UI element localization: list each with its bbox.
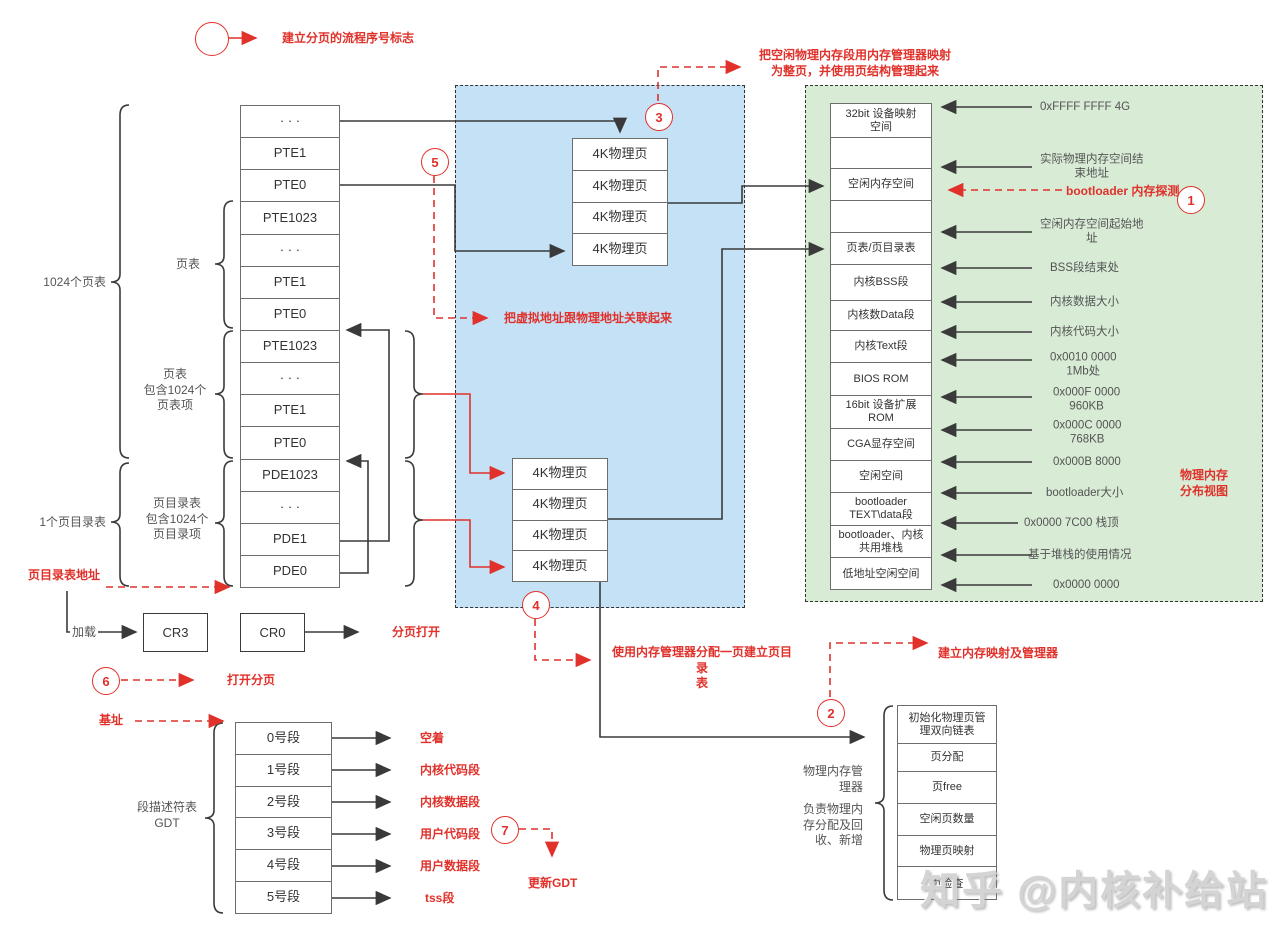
address-marker: 内核数据大小 xyxy=(1050,295,1119,309)
memory-row: 低地址空闲空间 xyxy=(831,558,931,590)
memory-row: 16bit 设备扩展 ROM xyxy=(831,396,931,429)
address-marker: 空闲内存空间起始地 址 xyxy=(1040,218,1144,247)
memory-row: 内核数Data段 xyxy=(831,301,931,331)
gdt-table: 0号段 1号段 2号段 3号段 4号段 5号段 xyxy=(235,722,332,914)
memory-row: 内核Text段 xyxy=(831,331,931,363)
address-marker: 实际物理内存空间结 束地址 xyxy=(1040,153,1144,182)
note-pgdir-address: 页目录表地址 xyxy=(28,568,100,584)
label-pagetable: 页表 xyxy=(150,257,200,273)
address-marker: BSS段结束处 xyxy=(1050,261,1119,275)
table-row: PDE1 xyxy=(241,524,339,556)
physical-page-cell: 4K物理页 xyxy=(513,459,607,490)
address-marker: 0x0000 0000 xyxy=(1053,578,1120,592)
note-alloc-pgdir: 使用内存管理器分配一页建立页目录 表 xyxy=(612,645,792,692)
physical-page-cell: 4K物理页 xyxy=(513,490,607,521)
legend-circle xyxy=(195,22,229,56)
note-map-free-pages: 把空闲物理内存段用内存管理器映射 为整页，并使用页结构管理起来 xyxy=(740,48,970,79)
gdt-row: 4号段 xyxy=(236,850,331,882)
table-row: · · · xyxy=(241,106,339,138)
note-link-va-pa: 把虚拟地址跟物理地址关联起来 xyxy=(504,311,672,327)
address-marker: 内核代码大小 xyxy=(1050,325,1119,339)
note-bootloader-probe: bootloader 内存探测 xyxy=(1066,184,1179,200)
page-stack-bottom: 4K物理页 4K物理页 4K物理页 4K物理页 xyxy=(512,458,608,582)
memory-row xyxy=(831,201,931,233)
memory-row: 空闲空间 xyxy=(831,461,931,493)
physical-page-cell: 4K物理页 xyxy=(573,139,667,171)
gdt-row: 0号段 xyxy=(236,723,331,755)
note-build-mapping: 建立内存映射及管理器 xyxy=(938,646,1058,662)
page-stack-top: 4K物理页 4K物理页 4K物理页 4K物理页 xyxy=(572,138,668,266)
memory-row: bootloader、内核 共用堆栈 xyxy=(831,526,931,558)
load-label: 加载 xyxy=(70,625,98,641)
physical-page-cell: 4K物理页 xyxy=(573,171,667,203)
step-circle-2: 2 xyxy=(817,699,845,727)
paging-flow-diagram: · · · PTE1 PTE0 PTE1023 · · · PTE1 PTE0 … xyxy=(0,0,1280,936)
label-gdt-brace: 段描述符表 GDT xyxy=(132,800,202,831)
step-circle-3: 3 xyxy=(645,103,673,131)
manager-row: 初始化物理页管 理双向链表 xyxy=(898,706,996,744)
page-table-column: · · · PTE1 PTE0 PTE1023 · · · PTE1 PTE0 … xyxy=(240,105,340,588)
address-marker: 基于堆栈的使用情况 xyxy=(1028,548,1132,562)
segment-usage-label: 用户代码段 xyxy=(420,827,480,843)
note-paging-open: 分页打开 xyxy=(392,625,440,641)
table-row: PTE1 xyxy=(241,267,339,299)
step-circle-1: 1 xyxy=(1177,186,1205,214)
label-one-pgdir: 1个页目录表 xyxy=(30,515,106,531)
table-row: PTE0 xyxy=(241,299,339,331)
note-open-paging: 打开分页 xyxy=(227,673,275,689)
cr0-register: CR0 xyxy=(240,613,305,652)
physical-page-cell: 4K物理页 xyxy=(573,234,667,265)
memory-row: bootloader TEXT\data段 xyxy=(831,493,931,526)
table-row: PDE0 xyxy=(241,556,339,587)
watermark: 知乎 @内核补给站 xyxy=(920,858,1268,916)
physical-page-cell: 4K物理页 xyxy=(513,551,607,581)
table-row: PTE1023 xyxy=(241,331,339,363)
table-row: PTE1023 xyxy=(241,202,339,234)
segment-usage-label: tss段 xyxy=(425,891,454,907)
segment-usage-label: 空着 xyxy=(420,731,444,747)
gdt-row: 5号段 xyxy=(236,882,331,913)
step-circle-7: 7 xyxy=(491,816,519,844)
memory-row: BIOS ROM xyxy=(831,363,931,396)
label-pagetable-detail: 页表 包含1024个 页表项 xyxy=(140,367,210,414)
memory-map-column: 32bit 设备映射 空间 空闲内存空间 页表/页目录表 内核BSS段 内核数D… xyxy=(830,103,932,590)
memory-row xyxy=(831,138,931,169)
gdt-row: 3号段 xyxy=(236,818,331,850)
physical-page-cell: 4K物理页 xyxy=(573,203,667,235)
cr3-register: CR3 xyxy=(143,613,208,652)
segment-usage-label: 内核数据段 xyxy=(420,795,480,811)
address-marker: 0x000B 8000 xyxy=(1053,455,1121,469)
manager-row: 页分配 xyxy=(898,744,996,772)
address-marker: 0xFFFF FFFF 4G xyxy=(1040,100,1130,114)
segment-usage-label: 内核代码段 xyxy=(420,763,480,779)
memory-row: 页表/页目录表 xyxy=(831,233,931,265)
table-row: · · · xyxy=(241,235,339,267)
step-circle-5: 5 xyxy=(421,148,449,176)
table-row: PTE0 xyxy=(241,427,339,459)
manager-side-label: 物理内存管 理器 xyxy=(801,764,863,795)
note-phys-view: 物理内存 分布视图 xyxy=(1172,468,1236,499)
address-marker: 0x0000 7C00 栈顶 xyxy=(1024,516,1119,530)
address-marker: 0x0010 0000 1Mb处 xyxy=(1050,351,1117,380)
step-circle-6: 6 xyxy=(92,667,120,695)
legend-note: 建立分页的流程序号标志 xyxy=(282,31,414,47)
table-row: PTE1 xyxy=(241,395,339,427)
table-row: PTE0 xyxy=(241,170,339,202)
gdt-row: 1号段 xyxy=(236,755,331,787)
address-marker: bootloader大小 xyxy=(1046,486,1123,500)
table-row: PTE1 xyxy=(241,138,339,170)
table-row: · · · xyxy=(241,363,339,395)
manager-row: 页free xyxy=(898,772,996,804)
manager-side-label: 负责物理内 存分配及回 收、新增 xyxy=(801,802,863,849)
step-circle-4: 4 xyxy=(522,591,550,619)
physical-page-cell: 4K物理页 xyxy=(513,521,607,552)
note-update-gdt: 更新GDT xyxy=(528,876,577,892)
gdt-row: 2号段 xyxy=(236,787,331,819)
brace-shapes xyxy=(111,105,893,913)
label-1024-pagetables: 1024个页表 xyxy=(36,275,106,291)
manager-row: 空闲页数量 xyxy=(898,804,996,836)
table-row: PDE1023 xyxy=(241,460,339,492)
segment-usage-label: 用户数据段 xyxy=(420,859,480,875)
memory-row: 内核BSS段 xyxy=(831,265,931,301)
address-marker: 0x000F 0000 960KB xyxy=(1053,386,1120,415)
memory-row: 空闲内存空间 xyxy=(831,169,931,201)
memory-row: 32bit 设备映射 空间 xyxy=(831,104,931,138)
address-marker: 0x000C 0000 768KB xyxy=(1053,419,1121,448)
memory-row: CGA显存空间 xyxy=(831,429,931,461)
label-pgdir-detail: 页目录表 包含1024个 页目录项 xyxy=(142,496,212,543)
note-base-address: 基址 xyxy=(99,713,123,729)
table-row: · · · xyxy=(241,492,339,524)
